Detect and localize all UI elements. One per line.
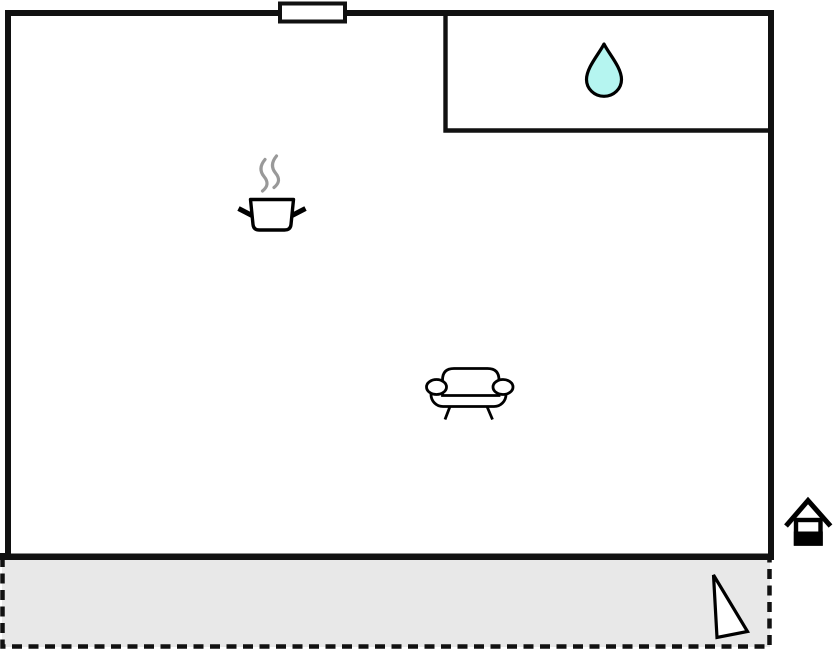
house-icon: [786, 501, 831, 546]
window-symbol: [280, 4, 345, 22]
main-room-walls: [8, 13, 771, 557]
terrace-area: [2, 557, 770, 647]
terrace: [2, 557, 770, 647]
house-body-lower: [794, 532, 823, 546]
sofa-back: [443, 369, 500, 396]
sofa-armrest-right: [493, 380, 513, 395]
floor-plan-canvas: [0, 0, 834, 652]
floor-plan: [0, 0, 834, 652]
pot-body: [251, 200, 294, 231]
sofa-armrest-left: [427, 380, 447, 395]
